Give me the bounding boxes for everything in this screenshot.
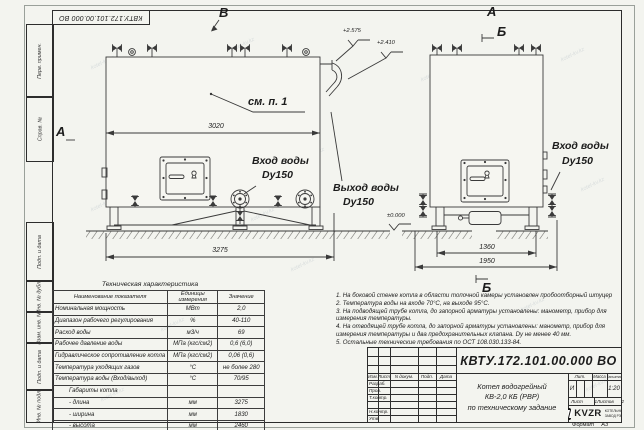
tb-scale-label: Масштаб [607, 373, 621, 380]
spec-value: 1830 [218, 409, 265, 421]
tb-lit-label: Лит. [568, 373, 592, 380]
dim-1950: 1950 [470, 258, 504, 265]
spec-unit: мм [168, 420, 218, 430]
front-view [66, 20, 411, 261]
spec-header-row: Наименование показателя Единицы измерени… [53, 291, 265, 304]
dim-1360: 1360 [470, 244, 504, 251]
spec-unit: °С [168, 374, 218, 386]
table-row: Рабочее давление водыМПа (кгс/см2)0,6 (6… [53, 339, 265, 351]
spec-unit: мм [168, 397, 218, 409]
spec-unit: % [168, 315, 218, 327]
spec-value: 0,6 (6,0) [218, 339, 265, 351]
tb-product-line1: Котел водогрейный [477, 382, 546, 392]
side-valve-stack-right [548, 194, 556, 217]
spec-unit: МПа (кгс/см2) [168, 350, 218, 362]
kvzr-logo-text: KVZR [574, 408, 601, 419]
spec-name: Диапазон рабочего регулирования [53, 315, 168, 327]
spec-table: Наименование показателя Единицы измерени… [52, 290, 265, 430]
spec-header-value: Значение [218, 291, 265, 304]
kvzr-logo-sub1: КОТЕЛЬНЫЙ [605, 409, 621, 413]
spec-unit: м3/ч [168, 327, 218, 339]
title-block: Изм. Лист N докум. Подп. Дата Разраб. Пр… [367, 347, 622, 423]
kvzr-logo-mark [568, 408, 571, 420]
spec-unit: °С [168, 362, 218, 374]
spec-header-name: Наименование показателя [53, 291, 168, 304]
note-2: 2. Температура воды на входе 70°С, на вы… [336, 300, 622, 307]
tb-sheets-value: 2 [621, 399, 624, 404]
format-value: А3 [601, 422, 608, 428]
ground-hatch [496, 231, 548, 239]
spec-name: - высота [53, 420, 168, 430]
dim-3020: 3020 [199, 123, 233, 130]
inlet-leader [551, 172, 560, 190]
spec-value: 70/95 [218, 374, 265, 386]
table-row: Температура уходящих газов°Сне более 280 [53, 362, 265, 374]
spec-name: Температура уходящих газов [53, 362, 168, 374]
tb-row-razrab: Разраб. [368, 380, 391, 387]
lifting-lug [303, 49, 310, 56]
tb-designation: КВТУ.172.101.00.000 ВО [456, 348, 621, 373]
spec-name: - длина [53, 397, 168, 409]
lifting-lug [129, 49, 136, 56]
drawing-sheet: kotel-kv.kz kotel-kv.kz kotel-kv.kz kote… [0, 0, 644, 430]
tb-sheet-label: Лист [571, 399, 583, 404]
note-5: 5. Остальные технические требования по О… [336, 339, 622, 346]
spec-value: 2460 [218, 420, 265, 430]
support-leg [312, 207, 320, 226]
support-leg [436, 207, 444, 226]
outlet-pipe [320, 60, 342, 96]
elevation-mark-2575 [336, 40, 370, 61]
spec-value: 69 [218, 327, 265, 339]
elevation-0000: ±0.000 [387, 213, 405, 219]
tb-lit-value: И [568, 380, 576, 397]
spec-value: не более 280 [218, 362, 265, 374]
spec-name: Габариты котла [53, 385, 168, 397]
tb-col-data: Дата [436, 373, 456, 380]
support-leg [529, 207, 537, 226]
section-mark-B-top [482, 34, 494, 42]
tb-col-izm: Изм. [368, 373, 378, 380]
technical-notes: 1. На боковой стенке котла в области топ… [336, 292, 622, 346]
outlet-size: Dy150 [343, 196, 374, 208]
view-marker-A-right: А [487, 4, 496, 19]
inlet-size-front: Dy150 [262, 169, 293, 181]
elevation-2410: +2.410 [377, 40, 395, 46]
section-marker-B-top: Б [497, 24, 506, 39]
outlet-label: Выход воды [333, 182, 399, 194]
spec-name: Расход воды [53, 327, 168, 339]
view-marker-B: В [219, 5, 228, 20]
table-row: Температура воды (Вход/выход)°С70/95 [53, 374, 265, 386]
outlet-leader [331, 112, 342, 181]
tb-product-line3: по техническому задание [468, 403, 557, 413]
pipe-stub [543, 170, 547, 179]
view-marker-A-left: А [56, 124, 65, 139]
elevation-mark-2410 [348, 52, 403, 79]
table-row: Гидравлическое сопротивление котлаМПа (к… [53, 350, 265, 362]
tb-col-ndoc: N докум. [390, 373, 418, 380]
tb-row-prov: Пров. [368, 387, 391, 394]
spec-value: 3275 [218, 397, 265, 409]
view-arrow-B [211, 20, 219, 32]
spec-name: Рабочее давление воды [53, 339, 168, 351]
inlet-label-side: Вход воды [552, 140, 609, 152]
burner-unit [458, 212, 501, 225]
tb-row-nkontr: Н.контр. [368, 408, 391, 415]
spec-name: - ширина [53, 409, 168, 421]
table-row: - ширинамм1830 [53, 409, 265, 421]
dim-3275: 3275 [203, 247, 237, 254]
table-row: - длинамм3275 [53, 397, 265, 409]
side-valve-stack-left [419, 194, 427, 217]
inlet-size-side: Dy150 [562, 155, 593, 167]
tb-logo: KVZR КОТЕЛЬНЫЙ ЗАВОД РЭП [568, 405, 621, 422]
note-1: 1. На боковой стенке котла в области топ… [336, 292, 622, 299]
spec-name: Номинальная мощность [53, 304, 168, 316]
spec-name: Температура воды (Вход/выход) [53, 374, 168, 386]
inlet-label-front: Вход воды [252, 155, 309, 167]
tb-sheets-label: Листов [597, 399, 614, 404]
boiler-body-side [430, 55, 543, 207]
tb-row-empty [368, 401, 391, 408]
note-4: 4. На отводящей трубе котла, до запорной… [336, 323, 622, 338]
callout-see-note-1: см. п. 1 [248, 96, 287, 108]
tb-row-tkontr: Т.контр. [368, 394, 391, 401]
note-3: 3. На подводящей трубе котла, до запорно… [336, 308, 622, 323]
spec-value: 0,06 (0,6) [218, 350, 265, 362]
spec-header-units: Единицы измерения [168, 291, 218, 304]
format-label: Формат [572, 422, 594, 428]
spec-value: 2,0 [218, 304, 265, 316]
tb-product-line2: КВ-2,0 КБ (РВР) [485, 392, 539, 402]
spec-unit: мм [168, 409, 218, 421]
tb-mass-label: Масса [592, 373, 607, 380]
tb-scale-value: 1:20 [607, 380, 621, 397]
spec-unit: МПа (кгс/см2) [168, 339, 218, 351]
spec-value: 40-110 [218, 315, 265, 327]
spec-unit [168, 385, 218, 397]
tb-col-list: Лист [378, 373, 390, 380]
elevation-2575: +2.575 [343, 28, 361, 34]
tb-row-utv: Утв. [368, 415, 391, 422]
kvzr-logo-sub2: ЗАВОД РЭП [605, 414, 621, 418]
spec-name: Гидравлическое сопротивление котла [53, 350, 168, 362]
tb-product-name: Котел водогрейный КВ-2,0 КБ (РВР) по тех… [456, 373, 568, 422]
table-row: Диапазон рабочего регулирования%40-110 [53, 315, 265, 327]
table-row: - высотамм2460 [53, 420, 265, 430]
kvzr-logo-subtitle: КОТЕЛЬНЫЙ ЗАВОД РЭП [605, 409, 621, 417]
format-note: Формат А3 [572, 422, 608, 428]
ground-hatch [86, 231, 390, 239]
tb-sheets: Листов 2 [594, 397, 627, 405]
table-row: Расход водым3/ч69 [53, 327, 265, 339]
elevation-mark-zero [389, 224, 411, 230]
tb-col-podp: Подп. [418, 373, 436, 380]
boiler-body-front [106, 57, 320, 207]
table-row: Номинальная мощностьМВт2,0 [53, 304, 265, 316]
spec-unit: МВт [168, 304, 218, 316]
pipe-stub [543, 186, 547, 193]
spec-value [218, 385, 265, 397]
spec-table-title: Техническая характеристика [52, 281, 248, 288]
pipe-stub [543, 152, 547, 159]
table-row: Габариты котла [53, 385, 265, 397]
support-leg [110, 207, 118, 226]
